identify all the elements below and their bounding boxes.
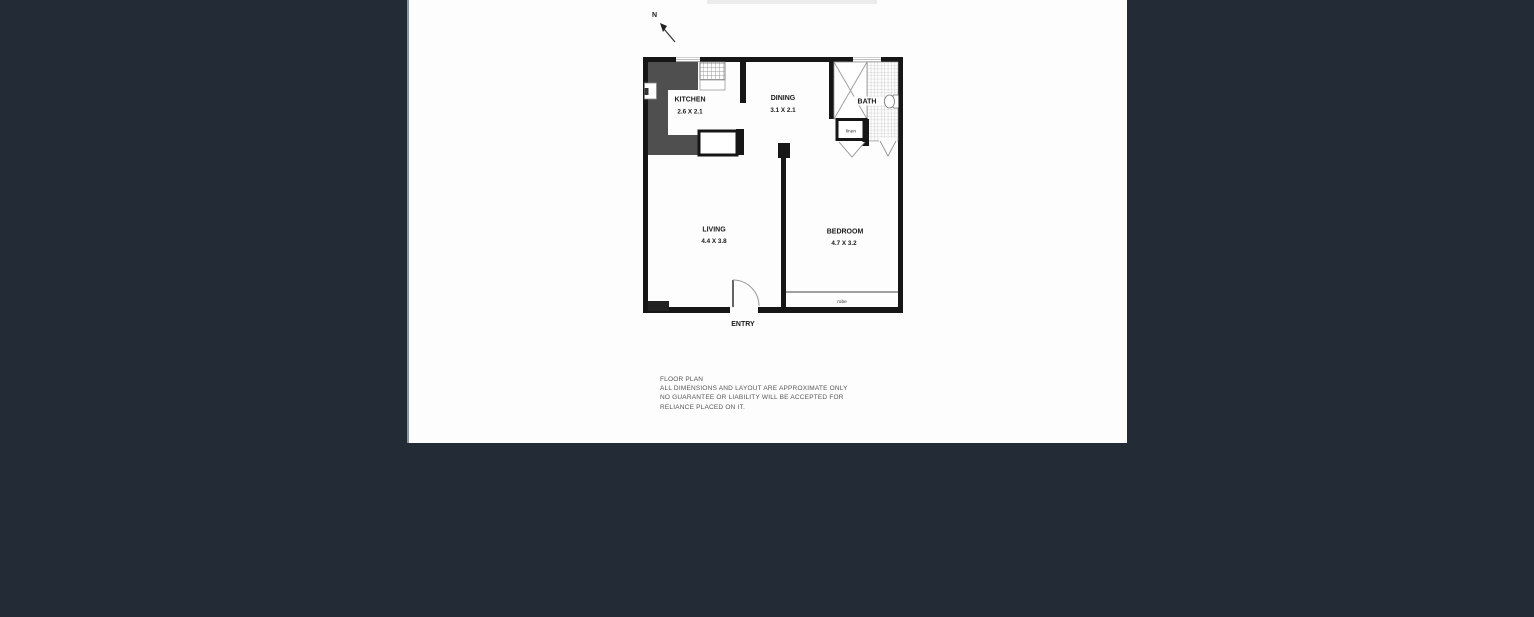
kitchen-wall <box>740 57 746 103</box>
room-dining: DINING 3.1 X 2.1 <box>770 95 796 114</box>
window-bath <box>853 57 881 61</box>
dining-label: DINING <box>771 95 796 102</box>
floor-plan-svg: KITCHEN 2.6 X 2.1 DINING 3.1 X 2.1 <box>643 55 905 333</box>
bath-door <box>880 141 896 156</box>
robe-label: robe <box>837 299 847 305</box>
north-arrow-icon <box>660 23 675 42</box>
dividing-wall <box>778 143 790 307</box>
bath-wall <box>829 57 834 119</box>
room-bedroom: BEDROOM 4.7 X 3.2 robe <box>786 229 898 306</box>
bath-label: BATH <box>858 99 877 106</box>
room-living: LIVING 4.4 X 3.8 <box>701 227 727 246</box>
bedroom-label: BEDROOM <box>827 229 864 236</box>
kitchen-dims: 2.6 X 2.1 <box>677 109 703 116</box>
bedroom-dims: 4.7 X 3.2 <box>831 240 857 247</box>
room-bath: BATH linen <box>829 57 899 157</box>
disclaimer-line: NO GUARANTEE OR LIABILITY WILL BE ACCEPT… <box>660 393 880 402</box>
sink-icon <box>645 83 657 99</box>
living-label: LIVING <box>702 227 726 234</box>
disclaimer-line: RELIANCE PLACED ON IT. <box>660 403 880 412</box>
entry-door-arc <box>733 280 759 306</box>
disclaimer-line: FLOOR PLAN <box>660 375 880 384</box>
corner-column <box>648 301 669 311</box>
north-indicator: N <box>645 6 685 48</box>
pantry-wall <box>736 129 744 155</box>
disclaimer-block: FLOOR PLAN ALL DIMENSIONS AND LAYOUT ARE… <box>660 375 880 412</box>
shower-icon <box>834 62 867 119</box>
page-top-artifact <box>707 0 877 4</box>
linen-label: linen <box>846 129 856 135</box>
kitchen-label: KITCHEN <box>674 97 705 104</box>
document-page: N <box>407 0 1127 443</box>
disclaimer-line: ALL DIMENSIONS AND LAYOUT ARE APPROXIMAT… <box>660 384 880 393</box>
living-dims: 4.4 X 3.8 <box>701 238 727 245</box>
stove-icon <box>700 62 725 90</box>
entry-door: ENTRY <box>731 280 759 328</box>
linen-wall <box>863 119 870 146</box>
toilet-icon <box>885 95 899 108</box>
viewer-background: N <box>0 0 1534 617</box>
north-label: N <box>652 12 657 19</box>
pantry-cupboard <box>699 131 737 155</box>
linen-door <box>839 142 865 157</box>
room-kitchen: KITCHEN 2.6 X 2.1 <box>645 57 747 155</box>
entry-label: ENTRY <box>731 321 755 328</box>
window-kitchen <box>676 57 700 61</box>
dining-dims: 3.1 X 2.1 <box>770 107 796 114</box>
